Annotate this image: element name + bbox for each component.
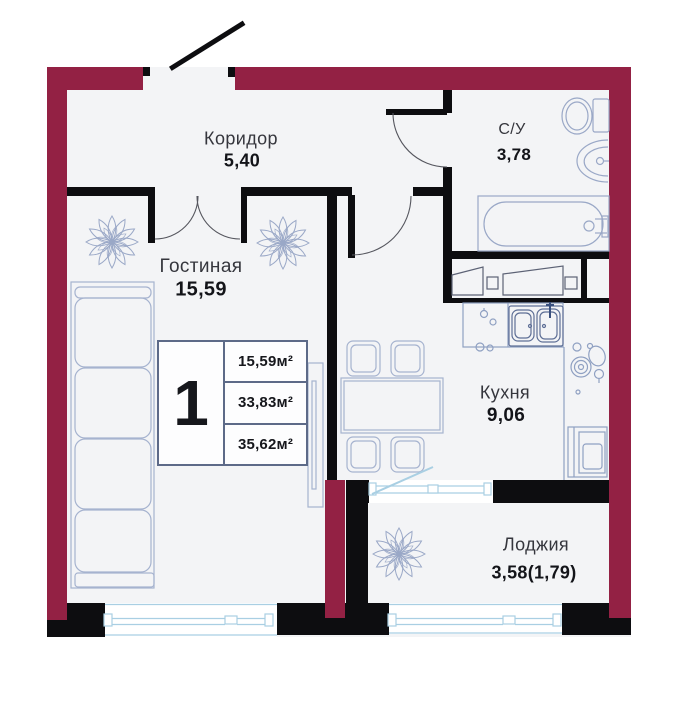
label-loggia: Лоджия bbox=[503, 535, 569, 556]
area-kitchen: 9,06 bbox=[487, 405, 525, 427]
sofa bbox=[71, 282, 154, 588]
balcony-door-leaf bbox=[372, 467, 433, 494]
area-overall-row: 35,62м² bbox=[225, 423, 306, 464]
wardrobe-sliding-doors bbox=[452, 266, 577, 295]
plant-icon bbox=[373, 528, 425, 580]
balcony-door-window bbox=[369, 467, 491, 495]
door-swing-arcs bbox=[155, 113, 447, 255]
label-kitchen: Кухня bbox=[480, 383, 530, 404]
bathroom-sink bbox=[577, 140, 609, 182]
furniture-layer bbox=[0, 0, 692, 701]
floor-plan: Коридор 5,40 С/У 3,78 Гостиная 15,59 Кух… bbox=[0, 0, 692, 701]
toilet bbox=[562, 98, 609, 134]
area-loggia: 3,58(1,79) bbox=[491, 563, 576, 584]
window-living bbox=[104, 605, 277, 636]
rooms-count: 1 bbox=[173, 371, 209, 435]
area-corridor: 5,40 bbox=[224, 151, 260, 172]
label-corridor: Коридор bbox=[204, 129, 278, 150]
unit-info-box: 1 15,59м² 33,83м² 35,62м² bbox=[157, 340, 308, 466]
dining-table-and-chairs bbox=[341, 341, 443, 472]
bathtub bbox=[478, 196, 609, 251]
tv-console bbox=[308, 363, 323, 507]
area-living-row: 15,59м² bbox=[225, 342, 306, 381]
rooms-count-cell: 1 bbox=[159, 342, 225, 464]
plant-icon bbox=[86, 216, 138, 268]
label-bathroom: С/У bbox=[498, 121, 525, 139]
area-total-row: 33,83м² bbox=[225, 381, 306, 422]
plant-icon bbox=[257, 217, 309, 269]
kitchen-appliances bbox=[568, 343, 608, 477]
window-loggia bbox=[388, 605, 562, 634]
area-living: 15,59 bbox=[175, 279, 227, 302]
area-bathroom: 3,78 bbox=[497, 145, 531, 165]
label-living: Гостиная bbox=[160, 256, 243, 278]
